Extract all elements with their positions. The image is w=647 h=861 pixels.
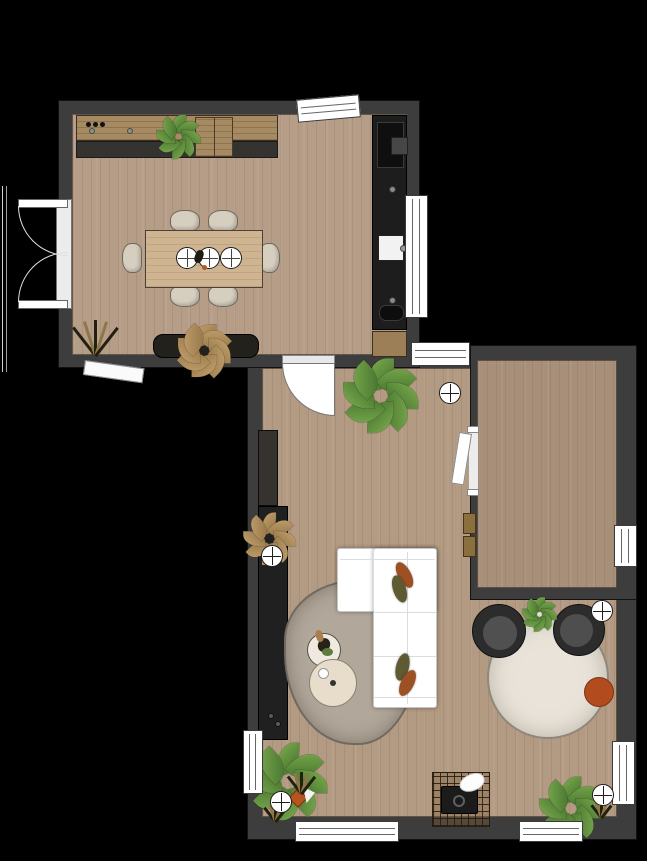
coffee-table-decor: [330, 680, 336, 686]
grass-plant: [80, 320, 108, 356]
armchair-seat: [560, 614, 593, 647]
dining-chair: [170, 210, 200, 231]
tall-cabinet: [258, 430, 278, 506]
cabinet-knob-icon: [389, 297, 396, 304]
dining-chair: [170, 286, 200, 307]
sofa-back-line: [340, 559, 435, 560]
dining-chair: [122, 243, 142, 273]
floor-plan: [0, 0, 647, 861]
counter-basin: [379, 305, 404, 321]
place-setting: [220, 247, 242, 269]
counter-cabinet-divider: [214, 118, 215, 156]
table-decor-dot: [202, 265, 207, 270]
sofa-cushion-line: [374, 612, 436, 613]
door-swing-arc: [18, 206, 68, 256]
oven-handle: [391, 137, 408, 155]
dining-chair: [208, 210, 238, 231]
door-frame-tick: [467, 489, 479, 496]
console-knob-icon: [268, 713, 274, 719]
dining-chair: [208, 286, 238, 307]
counter-fixture-icon: [127, 128, 133, 134]
living-bottom-window: [295, 821, 399, 842]
console-knob-icon: [275, 721, 281, 727]
ceiling-light-icon: [591, 600, 613, 622]
cooktop-knob-icon: [100, 122, 105, 127]
door-swing-arc: [18, 252, 68, 302]
credenza-dried-plant: [176, 324, 232, 362]
potted-grass: [288, 772, 312, 794]
door-frame-tick: [467, 426, 479, 433]
ceiling-light-icon: [439, 382, 461, 404]
armchair-seat: [483, 616, 517, 650]
wall-radiator: [463, 513, 476, 534]
stand-plant: [527, 597, 552, 622]
ceiling-light-icon: [592, 784, 614, 806]
ceiling-light-icon: [261, 545, 283, 567]
exterior-edge-lines: [2, 186, 7, 372]
pet-bowl-icon: [453, 795, 465, 807]
living-right-window: [612, 741, 635, 805]
cooktop-knob-icon: [86, 122, 91, 127]
kitchen-right-window: [405, 195, 428, 318]
cabinet-knob-icon: [389, 186, 396, 193]
large-potted-plant: [352, 358, 410, 412]
counter-fixture-icon: [89, 128, 95, 134]
sofa-cushion-line: [373, 550, 374, 610]
table-plant-sprig: [322, 648, 333, 656]
ceiling-light-icon: [270, 791, 292, 813]
living-bottom-window: [519, 821, 583, 842]
living-left-window: [243, 730, 263, 794]
counter-plant: [164, 114, 194, 146]
living-top-window: [411, 342, 470, 366]
pouf-ottoman: [584, 677, 614, 707]
base-cabinet: [372, 331, 407, 357]
sofa-armrest-line: [374, 697, 436, 698]
wall-radiator: [463, 536, 476, 557]
cooktop-knob-icon: [93, 122, 98, 127]
side-room-floor: [477, 360, 617, 588]
dining-chair: [260, 243, 280, 273]
side-room-right-window: [614, 525, 637, 567]
coffee-table-tray: [318, 668, 329, 679]
